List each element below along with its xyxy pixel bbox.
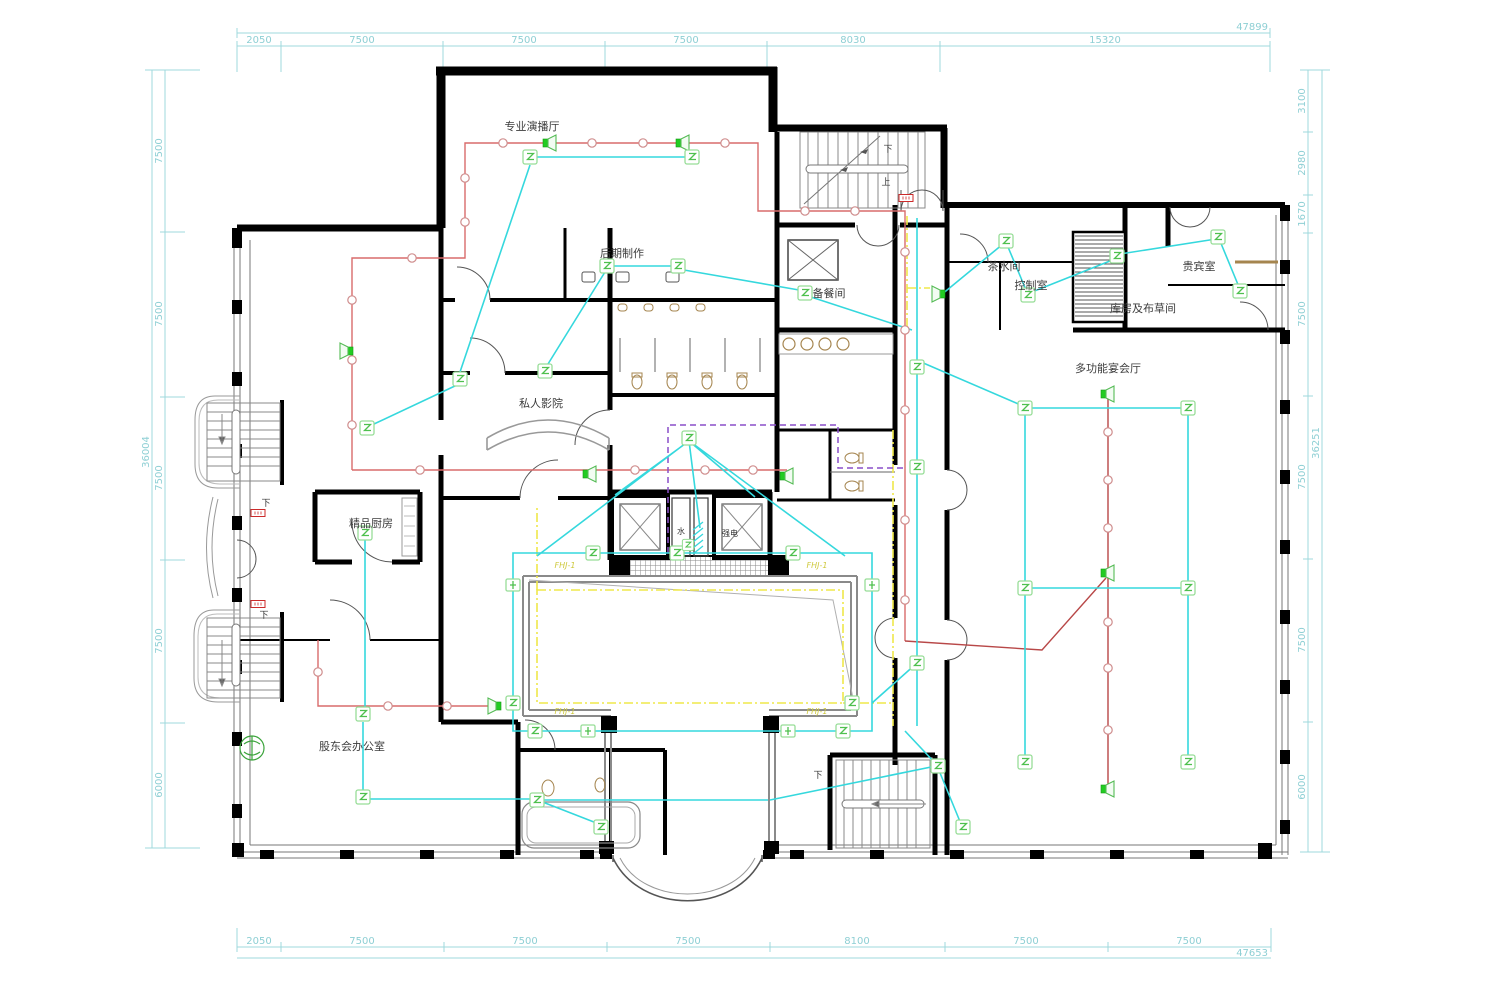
fire-shutter-label: FHJ-1 (555, 707, 576, 716)
dim-left-seg: 7500 (154, 628, 165, 653)
stair-bottom (836, 760, 930, 848)
dim-top-seg: 7500 (511, 35, 536, 46)
stair-left-upper (195, 396, 280, 488)
power-riser-label: 强电 (722, 528, 738, 538)
dim-right-seg: 3100 (1297, 88, 1308, 113)
room-label-shareholders-office: 股东会办公室 (319, 739, 385, 753)
dim-top-seg: 15320 (1089, 35, 1121, 46)
stair-down-label: 下 (261, 499, 270, 509)
dim-right-seg: 7500 (1297, 464, 1308, 489)
dim-bottom-seg: 7500 (349, 936, 374, 947)
dim-left-total: 36004 (141, 436, 152, 468)
dim-top-seg: 7500 (673, 35, 698, 46)
room-labels: 专业演播厅 后期制作 备餐间 茶水间 控制室 贵宾室 库房及布草间 多功能宴会厅… (319, 119, 1216, 753)
dim-top-seg: 7500 (349, 35, 374, 46)
dim-right-seg: 7500 (1297, 627, 1308, 652)
fire-shutter-label: FHJ-1 (807, 707, 828, 716)
dim-right-seg: 7500 (1297, 301, 1308, 326)
dim-right-seg: 6000 (1297, 774, 1308, 799)
dim-left-seg: 6000 (154, 772, 165, 797)
dim-right-seg: 2980 (1297, 150, 1308, 175)
stair-up-label: 上 (881, 177, 890, 188)
structural-walls (237, 67, 1285, 855)
room-label-vip-room: 贵宾室 (1183, 259, 1216, 273)
planter-plant (240, 736, 264, 760)
dim-top-total: 47899 (1236, 22, 1268, 33)
stair-down-label: 下 (883, 145, 892, 155)
floor-plan-sheet: 47899 2050 7500 7500 7500 8030 15320 476… (0, 0, 1500, 999)
stair-down-label: 下 (813, 771, 822, 781)
speaker-circuit-red (318, 143, 1108, 788)
room-label-control-room: 控制室 (1015, 278, 1048, 292)
dim-bottom-seg: 7500 (1176, 936, 1201, 947)
dim-top-seg: 8030 (840, 35, 865, 46)
floor-plan-drawing: 47899 2050 7500 7500 7500 8030 15320 476… (0, 0, 1500, 999)
room-label-tea-room: 茶水间 (988, 260, 1021, 273)
dim-bottom-seg: 8100 (844, 936, 869, 947)
dim-right-seg: 1670 (1297, 201, 1308, 226)
water-riser-label: 水 (677, 526, 685, 536)
dim-right-total: 36251 (1311, 427, 1322, 459)
room-label-boutique-kitchen: 精品厨房 (349, 517, 393, 530)
dim-bottom-total: 47653 (1236, 948, 1268, 959)
dim-left-seg: 7500 (154, 301, 165, 326)
stair-down-label: 下 (259, 611, 268, 621)
dim-bottom-seg: 2050 (246, 936, 271, 947)
room-label-private-cinema: 私人影院 (519, 396, 563, 410)
zone-boundary-purple (668, 425, 903, 553)
dim-bottom-seg: 7500 (675, 936, 700, 947)
dim-left-seg: 7500 (154, 465, 165, 490)
room-label-banquet-hall: 多功能宴会厅 (1075, 361, 1141, 375)
fire-shutter-label: FHJ-1 (807, 561, 828, 570)
dim-bottom-seg: 7500 (512, 936, 537, 947)
room-label-pantry: 备餐间 (813, 286, 846, 300)
dim-top-seg: 2050 (246, 35, 271, 46)
room-label-post-production: 后期制作 (600, 247, 644, 260)
dim-bottom-seg: 7500 (1013, 936, 1038, 947)
red-tags (251, 195, 913, 608)
dim-left-seg: 7500 (154, 138, 165, 163)
room-label-storage-linen: 库房及布草间 (1110, 302, 1176, 315)
fire-shutter-label: FHJ-1 (555, 561, 576, 570)
entrance-porch (613, 855, 762, 901)
room-label-studio: 专业演播厅 (505, 119, 560, 133)
central-hall-columns (599, 716, 779, 854)
horn-speaker-symbols (340, 135, 1114, 797)
